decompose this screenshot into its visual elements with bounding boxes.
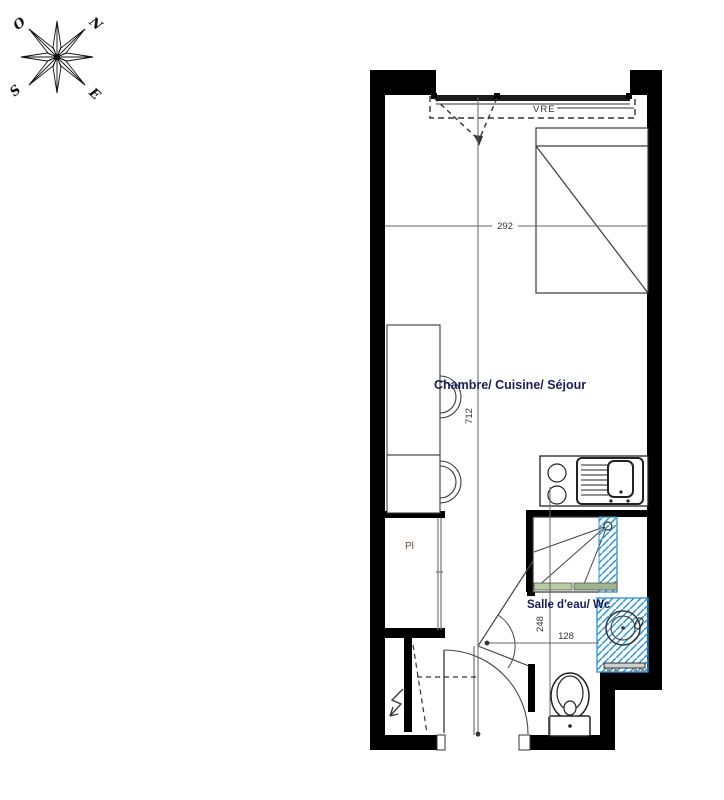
shower-threshold-left <box>534 583 572 590</box>
kitchen-block <box>540 456 648 506</box>
dim-712-label: 712 <box>464 408 475 424</box>
bath-door-leaf-open <box>478 561 533 646</box>
tall-cabinet <box>387 325 440 455</box>
toilet <box>549 673 590 736</box>
closet-pl: Pl <box>405 518 443 630</box>
main-room-label: Chambre/ Cuisine/ Séjour <box>434 378 586 392</box>
entrance-jamb-left <box>437 735 445 750</box>
window-mullion-right <box>626 93 632 99</box>
closet-label: Pl <box>405 541 414 552</box>
wardrobe-column <box>387 325 461 513</box>
dim-128-label: 128 <box>558 631 574 642</box>
closet-bottom-wall <box>383 628 445 638</box>
bath-door-swing-arc <box>498 615 515 668</box>
sink-drain-dot <box>619 490 622 493</box>
sink-faucet-dot-left <box>609 499 612 502</box>
floor-plan-canvas: O N S E VRE <box>0 0 724 800</box>
towel-rail-bar <box>604 663 645 668</box>
duct-dashed-line <box>413 645 427 733</box>
compass-east-label: E <box>85 85 104 104</box>
entrance-jamb-right <box>519 735 530 750</box>
toilet-tank-button <box>568 724 572 728</box>
bath-door-leaf-closed <box>478 646 529 666</box>
doors <box>437 561 533 750</box>
sink-faucet-dot-right <box>626 499 629 502</box>
towel-rail-foot-3 <box>634 668 637 672</box>
wall-right <box>647 70 662 690</box>
closet-sliding-door <box>436 518 443 630</box>
low-cabinet-door-arc-outer <box>440 461 461 503</box>
shower-threshold-right <box>574 583 617 590</box>
towel-rail-foot-4 <box>641 668 644 672</box>
low-cabinet <box>387 455 440 513</box>
bath-door-wall-stub <box>528 664 535 712</box>
dim-712-end-dot <box>476 732 481 737</box>
window-glazing <box>436 95 630 101</box>
compass-south-label: S <box>7 83 24 101</box>
entrance-door-swing-arc <box>444 650 528 734</box>
towel-rail-foot-2 <box>614 668 617 672</box>
bed <box>536 128 648 293</box>
toilet-bowl-drain <box>564 701 576 715</box>
towel-rail-foot-1 <box>607 668 610 672</box>
dimension-712: 712 <box>462 97 480 737</box>
shower <box>533 517 617 592</box>
wall-left <box>370 70 385 750</box>
vre-label: VRE <box>533 104 556 115</box>
wall-bottom-left <box>370 735 437 750</box>
dim-248-label: 248 <box>535 616 546 632</box>
sink-drainboard-lines <box>581 465 608 495</box>
wall-bottom-right <box>522 735 615 750</box>
bathroom-partition-lines <box>474 646 478 735</box>
shower-glass-hatch <box>599 517 617 592</box>
dim-128-end-dot <box>485 641 490 646</box>
compass-north-label: N <box>85 14 105 34</box>
compass-west-label: O <box>11 14 30 33</box>
bathroom-label: Salle d'eau/ Wc <box>527 599 611 611</box>
floor-plan-page: O N S E VRE <box>0 0 724 800</box>
basin-drain-dot <box>621 626 625 630</box>
vestibule <box>390 645 477 733</box>
bathroom-partition <box>474 646 478 735</box>
dim-292-label: 292 <box>497 221 513 232</box>
vestibule-wall-stub <box>404 638 412 732</box>
compass-rose: O N S E <box>7 14 105 104</box>
bathroom-top-wall <box>529 510 648 517</box>
bed-outline <box>536 128 648 293</box>
compass-hub <box>54 54 60 60</box>
low-cabinet-door-arc-inner <box>440 466 456 498</box>
